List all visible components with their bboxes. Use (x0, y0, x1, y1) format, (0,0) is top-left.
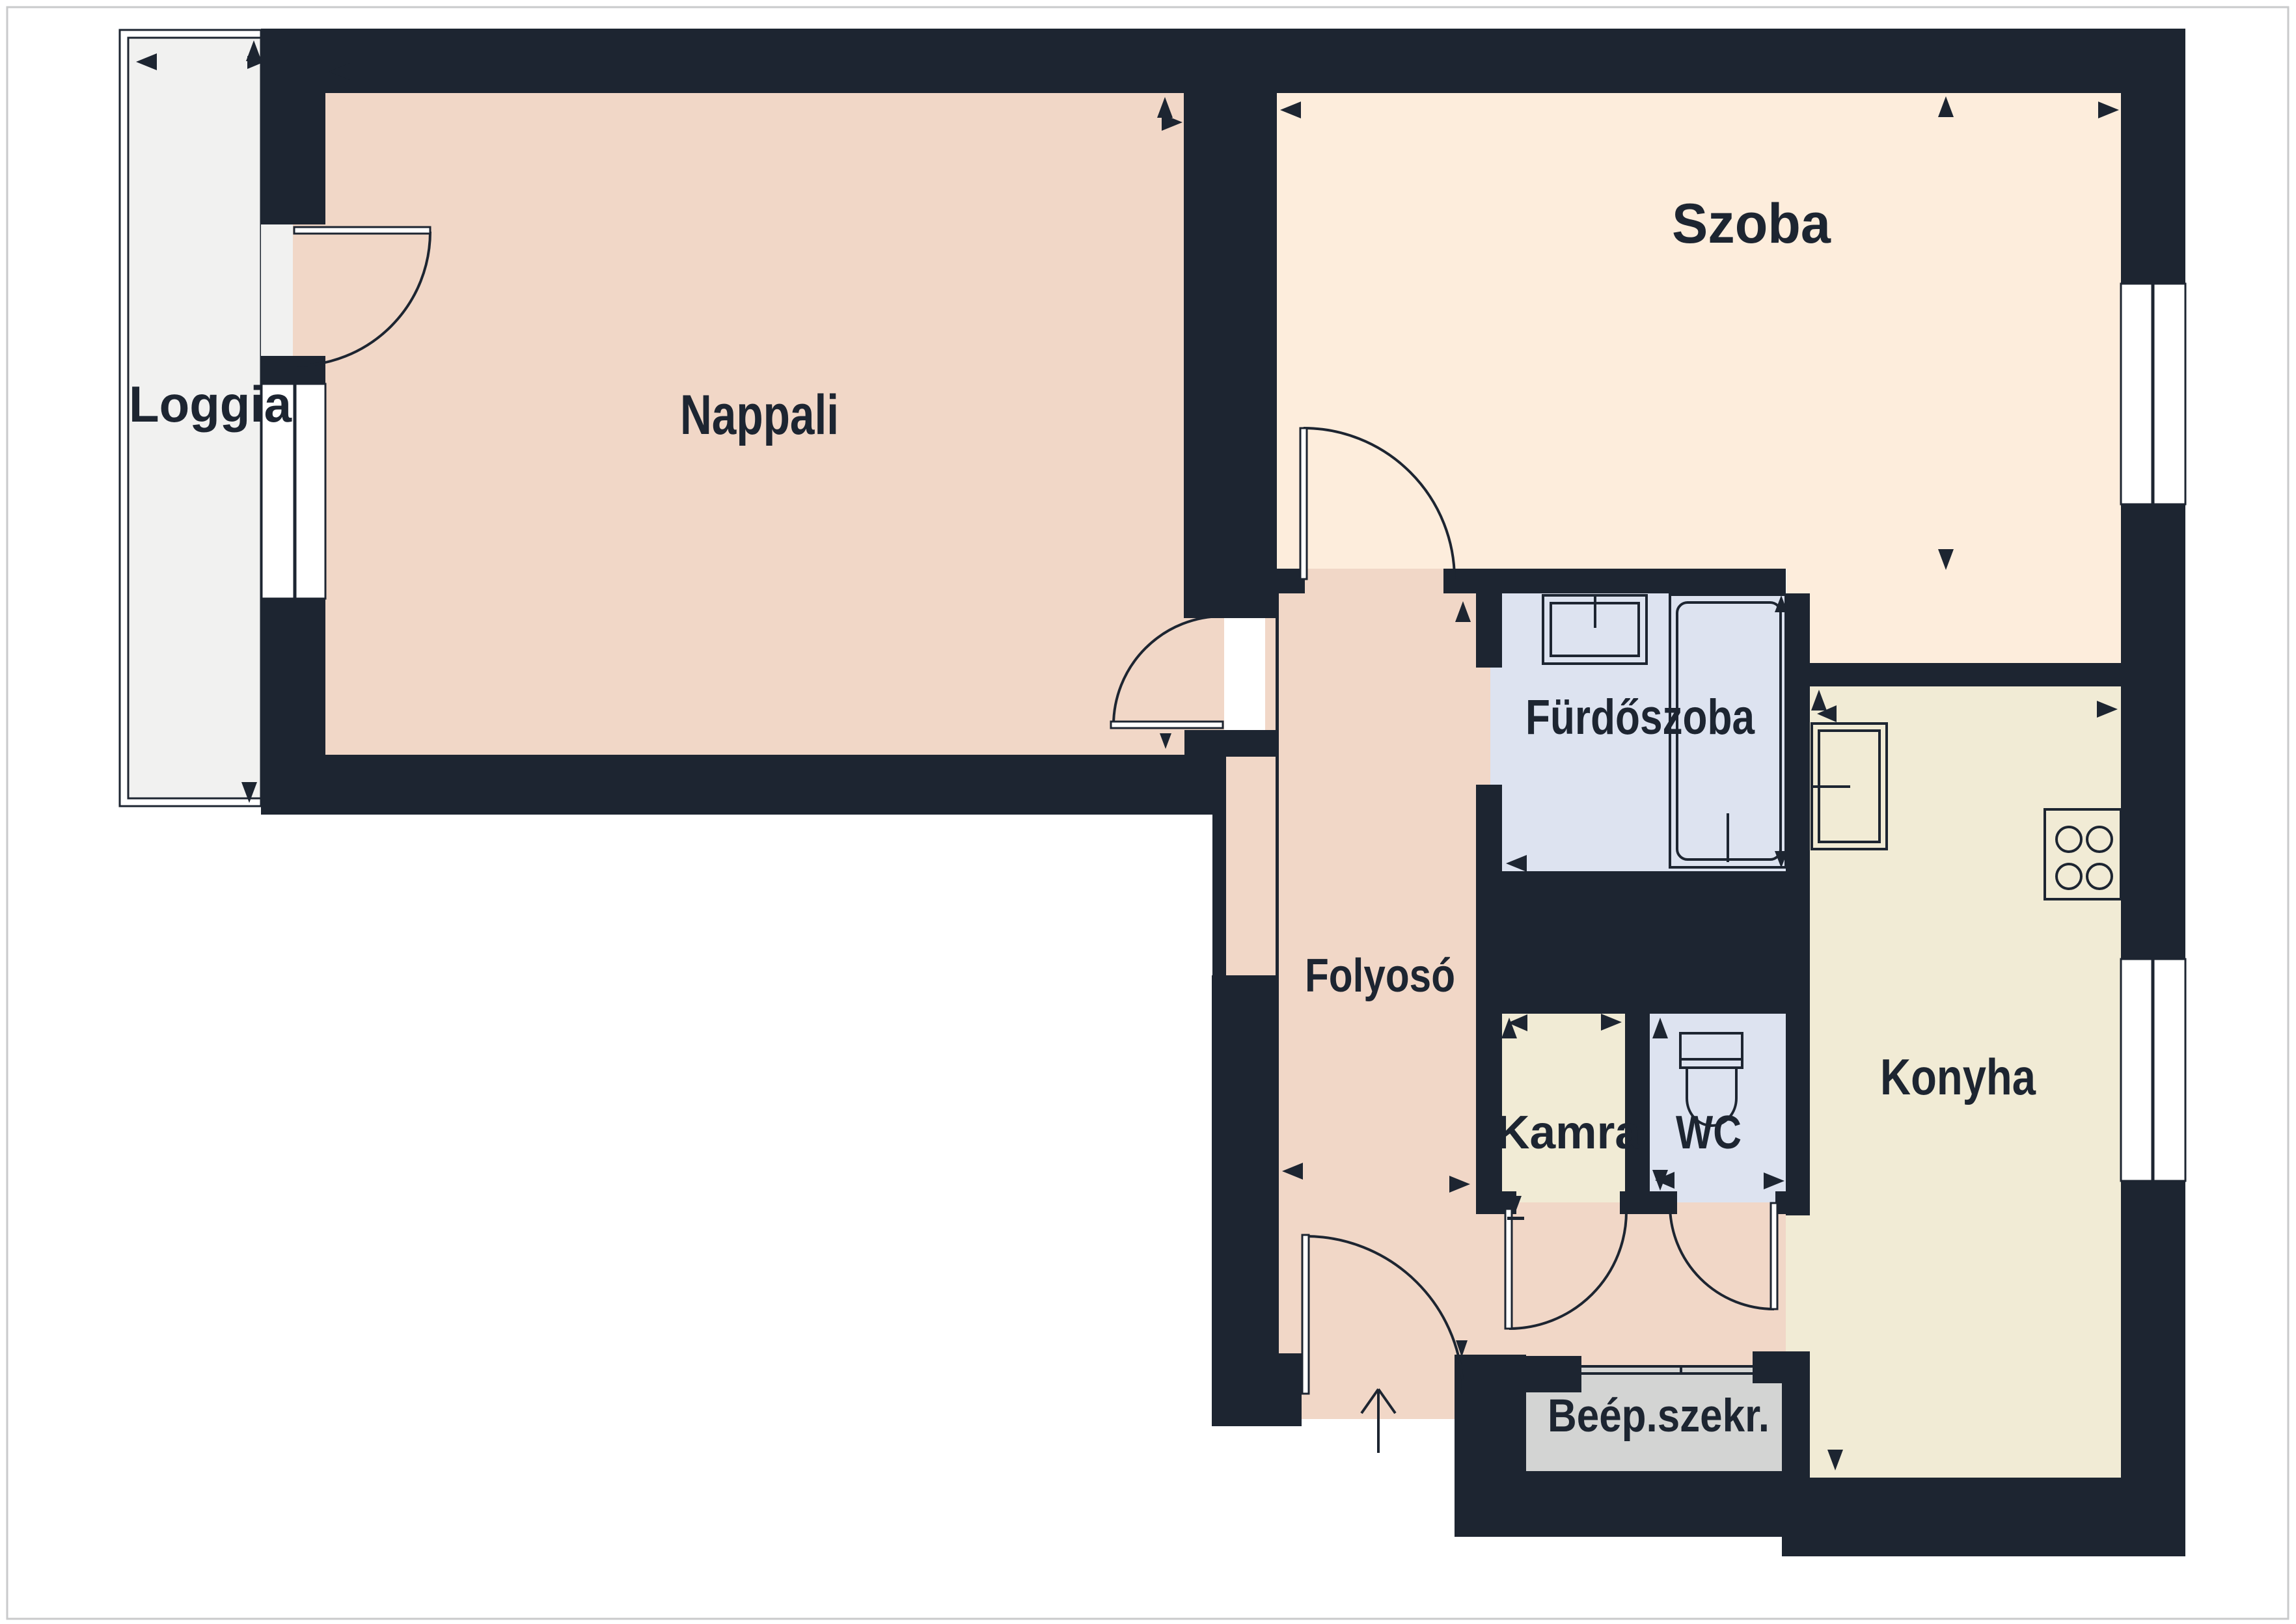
svg-text:Kamra: Kamra (1496, 1107, 1641, 1159)
svg-text:Konyha: Konyha (1880, 1048, 2036, 1105)
svg-text:Loggia: Loggia (129, 375, 292, 433)
svg-text:Folyosó: Folyosó (1305, 950, 1455, 1002)
svg-text:Nappali: Nappali (680, 384, 839, 446)
svg-text:WC: WC (1676, 1107, 1742, 1159)
svg-text:Beép.szekr.: Beép.szekr. (1548, 1390, 1770, 1442)
svg-text:Fürdőszoba: Fürdőszoba (1525, 690, 1755, 745)
svg-text:Szoba: Szoba (1672, 193, 1831, 255)
